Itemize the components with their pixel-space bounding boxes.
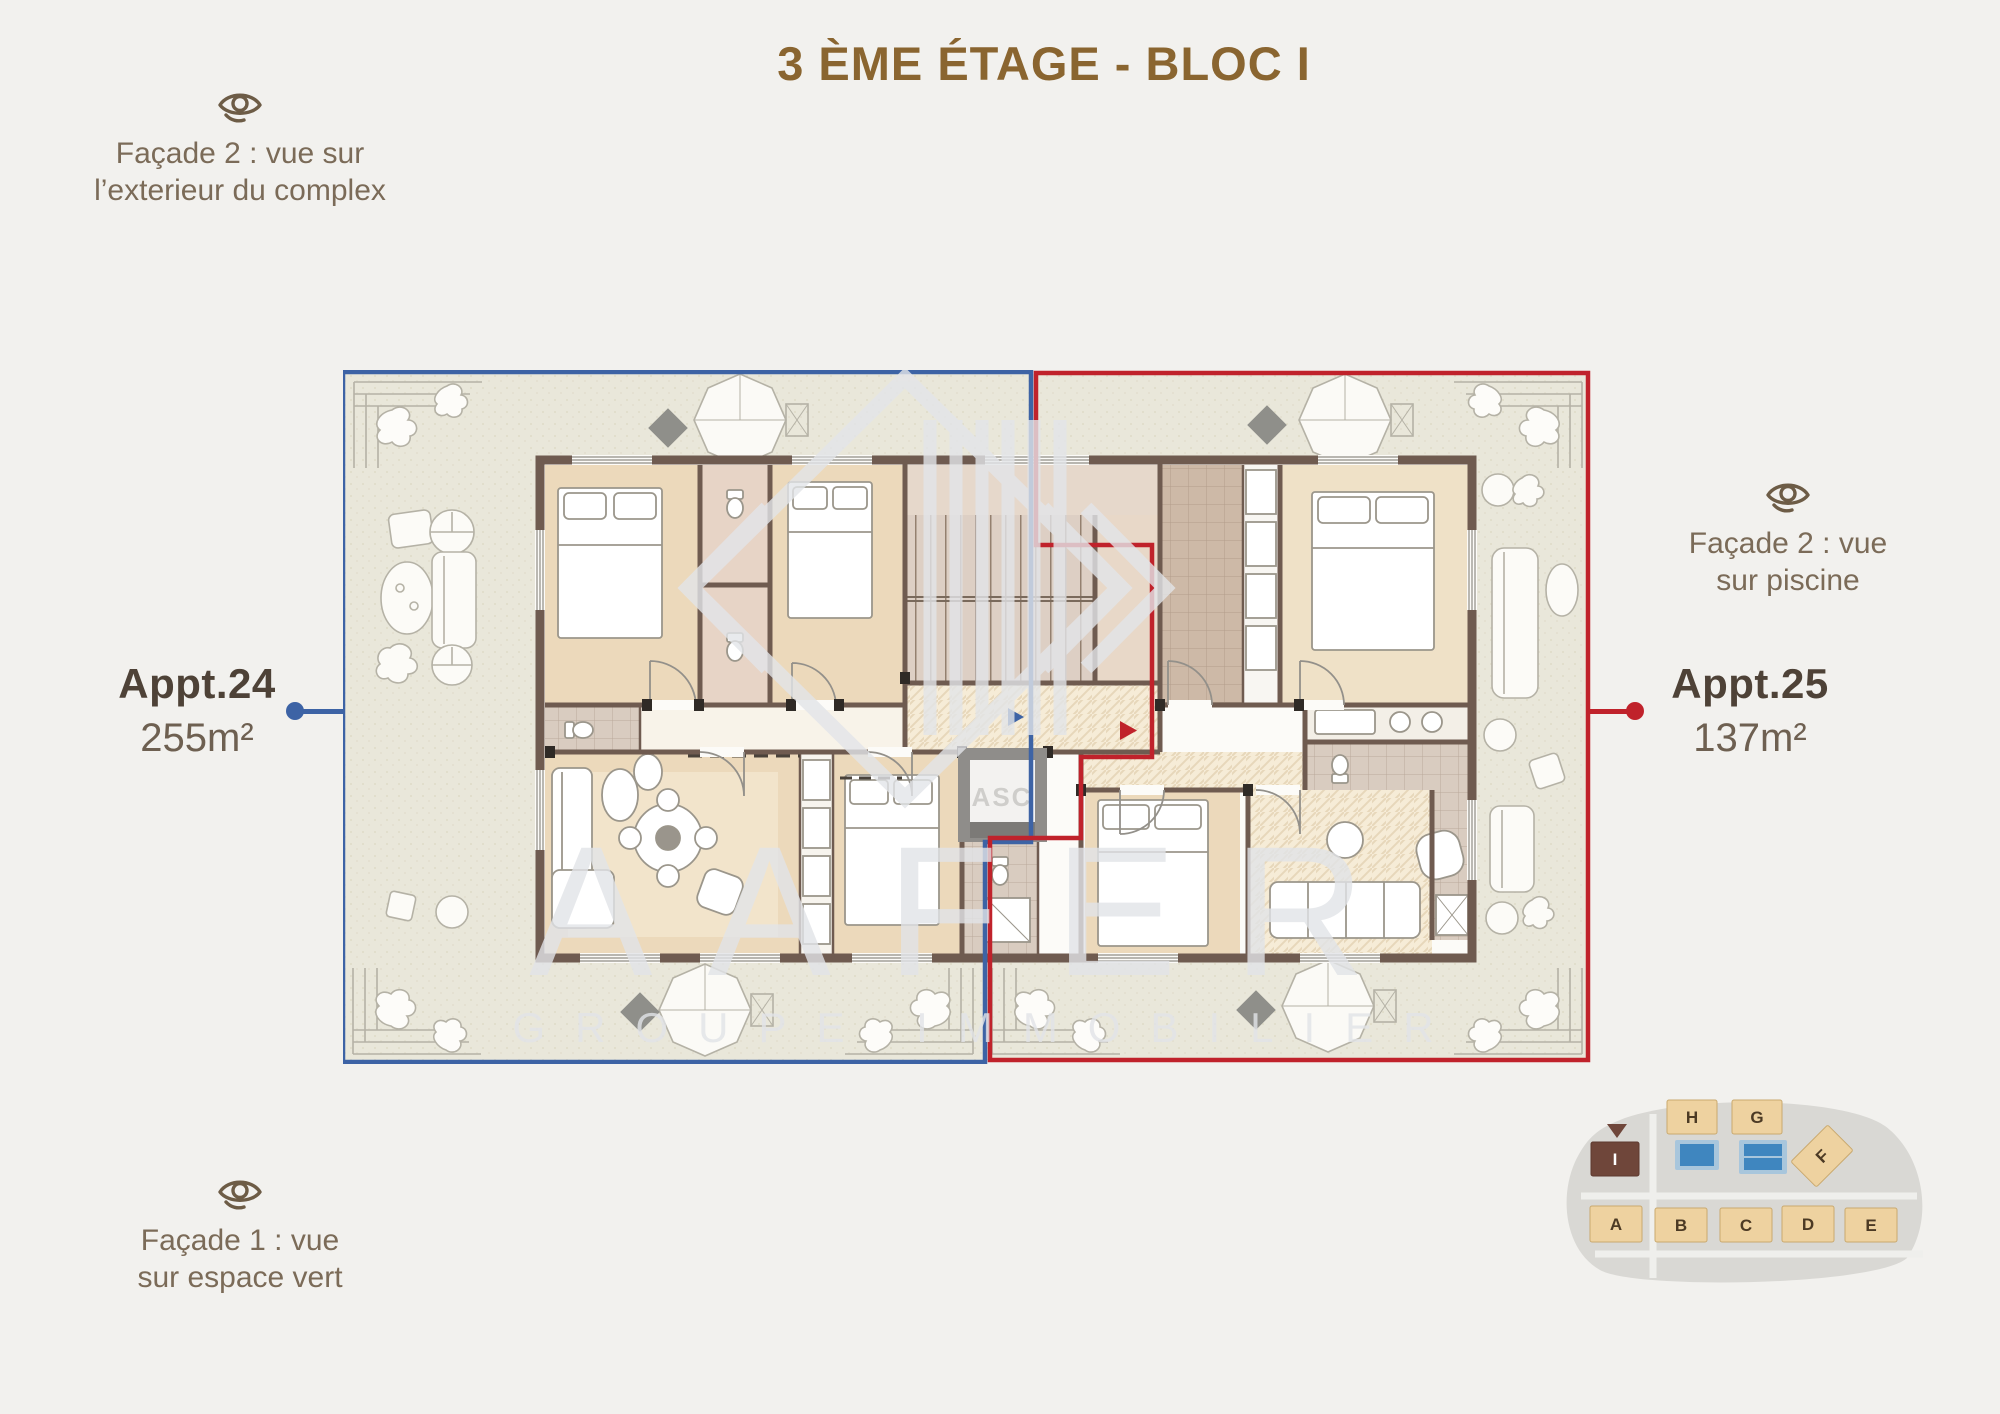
facade-text-line1: Façade 1 : vue <box>85 1222 395 1259</box>
facade-text-line2: l’exterieur du complex <box>85 172 395 209</box>
block-e-label: E <box>1865 1216 1876 1235</box>
apartment-24-area: 255m² <box>92 716 302 761</box>
apartment-25-label: Appt.25 137m² <box>1645 660 1855 761</box>
block-d-label: D <box>1802 1215 1814 1234</box>
facade-text-line2: sur piscine <box>1638 562 1938 599</box>
watermark-brand: AAFER <box>529 809 1421 1015</box>
page-title: 3 ÈME ÉTAGE - BLOC I <box>44 36 2000 91</box>
facade-text-line1: Façade 2 : vue sur <box>85 135 395 172</box>
block-g-label: G <box>1750 1108 1763 1127</box>
eye-icon <box>1762 475 1814 515</box>
facade-text-line1: Façade 2 : vue <box>1638 525 1938 562</box>
floor-plan: ASC AAFER GROUPE IMMOBILIER <box>343 370 1593 1064</box>
block-c-label: C <box>1740 1216 1752 1235</box>
apartment-24-connector-dot <box>286 702 304 720</box>
block-b-label: B <box>1675 1216 1687 1235</box>
watermark-tagline: GROUPE IMMOBILIER <box>512 1004 1463 1051</box>
eye-icon <box>214 85 266 125</box>
apartment-25-connector-dot <box>1626 702 1644 720</box>
block-h-label: H <box>1686 1108 1698 1127</box>
facade-label-exterior: Façade 2 : vue sur l’exterieur du comple… <box>85 85 395 209</box>
facade-label-piscine: Façade 2 : vue sur piscine <box>1638 475 1938 599</box>
facade-text-line2: sur espace vert <box>85 1259 395 1296</box>
site-map: H G F I A B C D E <box>1545 1078 1945 1318</box>
eye-icon <box>214 1172 266 1212</box>
apartment-25-name: Appt.25 <box>1645 660 1855 708</box>
apartment-24-name: Appt.24 <box>92 660 302 708</box>
block-a-label: A <box>1610 1215 1622 1234</box>
facade-label-espace-vert: Façade 1 : vue sur espace vert <box>85 1172 395 1296</box>
elevator-label: ASC <box>972 782 1033 812</box>
apartment-24-label: Appt.24 255m² <box>92 660 302 761</box>
block-i-label: I <box>1613 1150 1618 1169</box>
apartment-25-area: 137m² <box>1645 716 1855 761</box>
floor-plan-page: 3 ÈME ÉTAGE - BLOC I Façade 2 : vue sur … <box>0 0 2000 1414</box>
